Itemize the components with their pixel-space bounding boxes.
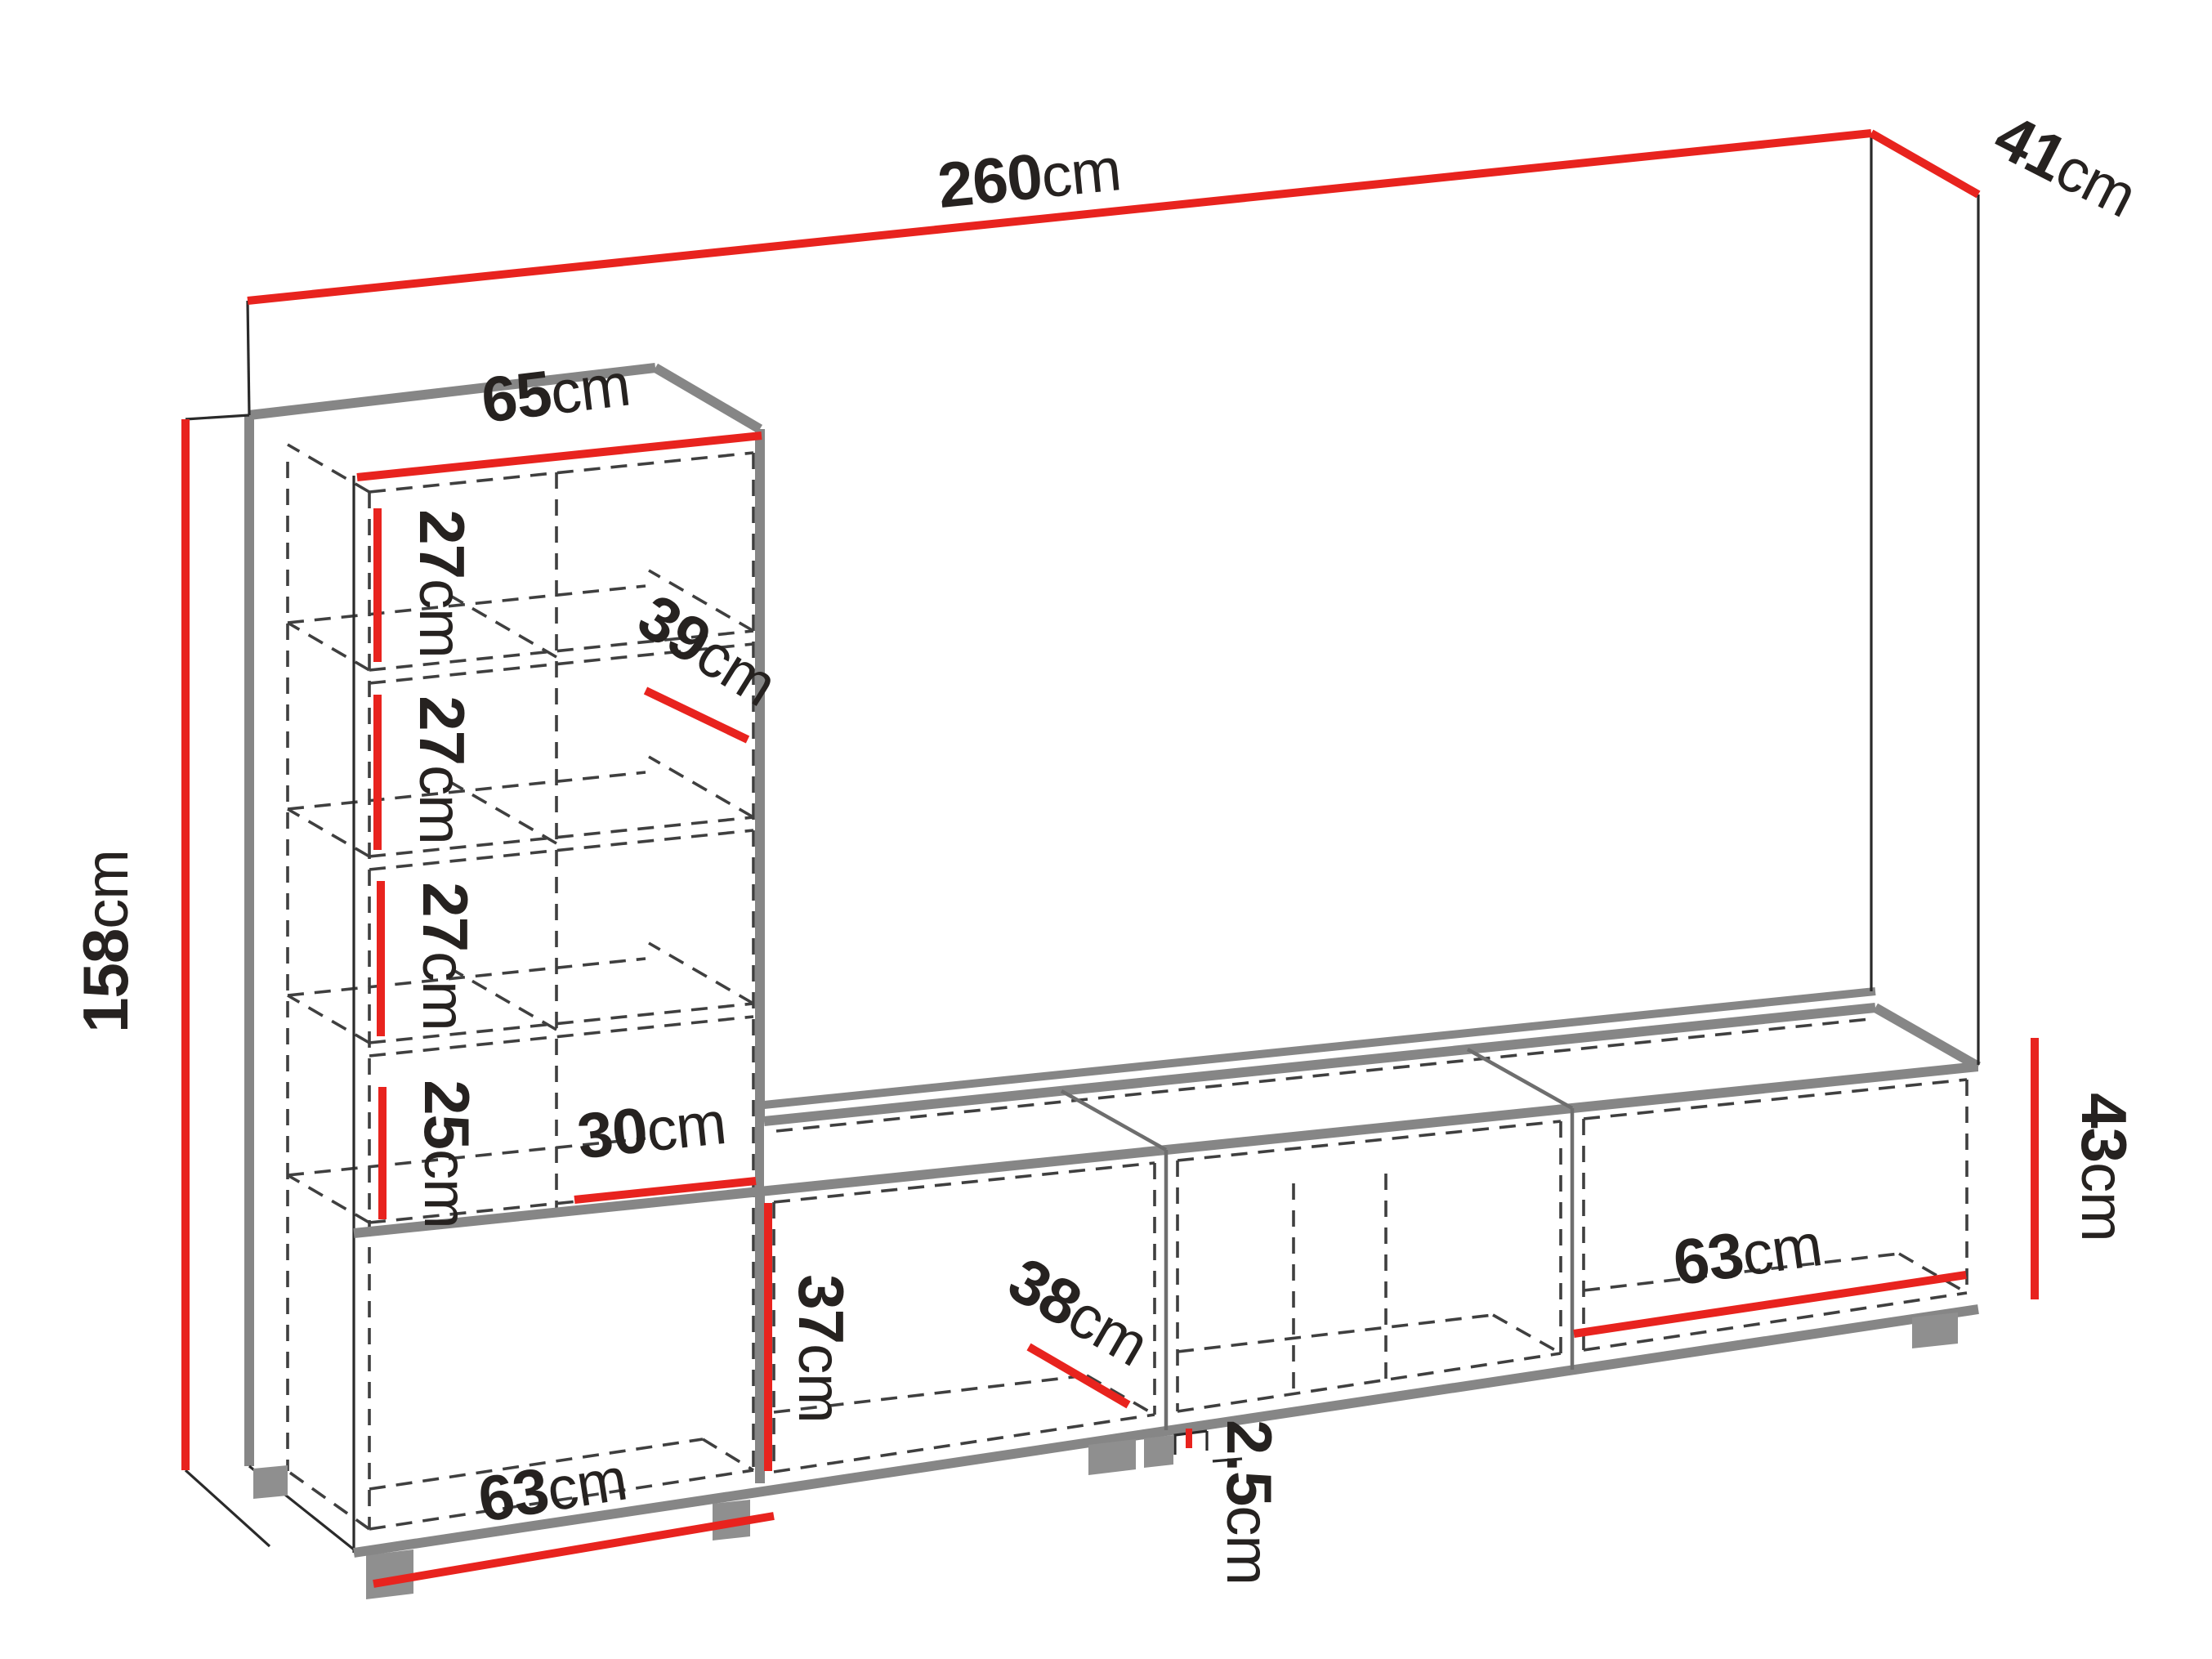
label-right-column-width: 30cm bbox=[574, 1085, 729, 1172]
wall-unit-technical-drawing: 260cm 41cm 158cm 65cm 27cm 27cm 27cm 25c… bbox=[0, 0, 2212, 1659]
label-cubby-row-2: 27cm bbox=[406, 695, 478, 843]
dim-line-base-left-width bbox=[373, 1516, 774, 1584]
furniture-dimension-diagram: 260cm 41cm 158cm 65cm 27cm 27cm 27cm 25c… bbox=[0, 0, 2212, 1659]
label-total-height: 158cm bbox=[69, 850, 141, 1033]
ext-total-width-left bbox=[248, 301, 249, 415]
label-total-width: 260cm bbox=[935, 132, 1124, 221]
label-cubby-row-1: 27cm bbox=[406, 509, 478, 657]
label-tv-inner-depth: 38cm bbox=[997, 1243, 1161, 1380]
ext-total-height-top bbox=[185, 415, 249, 419]
label-shelf-depth: 39cm bbox=[626, 580, 789, 720]
label-base-right-width: 63cm bbox=[1669, 1207, 1825, 1299]
tv-stand-right-side-panel bbox=[1978, 1061, 2028, 1306]
label-tv-side-height: 43cm bbox=[2068, 1093, 2140, 1241]
label-base-left-width: 63cm bbox=[473, 1442, 631, 1536]
label-cubby-row-4: 25cm bbox=[411, 1080, 483, 1227]
label-tv-opening-height: 37cm bbox=[785, 1274, 857, 1422]
label-total-depth: 41cm bbox=[1983, 100, 2148, 231]
bookshelf-tower bbox=[249, 368, 760, 1599]
dim-line-total-depth bbox=[1871, 133, 1978, 195]
bookshelf-outline bbox=[249, 368, 760, 1553]
label-bottom-panel: 2.5cm bbox=[1213, 1420, 1285, 1585]
label-cubby-row-3: 27cm bbox=[409, 882, 481, 1030]
